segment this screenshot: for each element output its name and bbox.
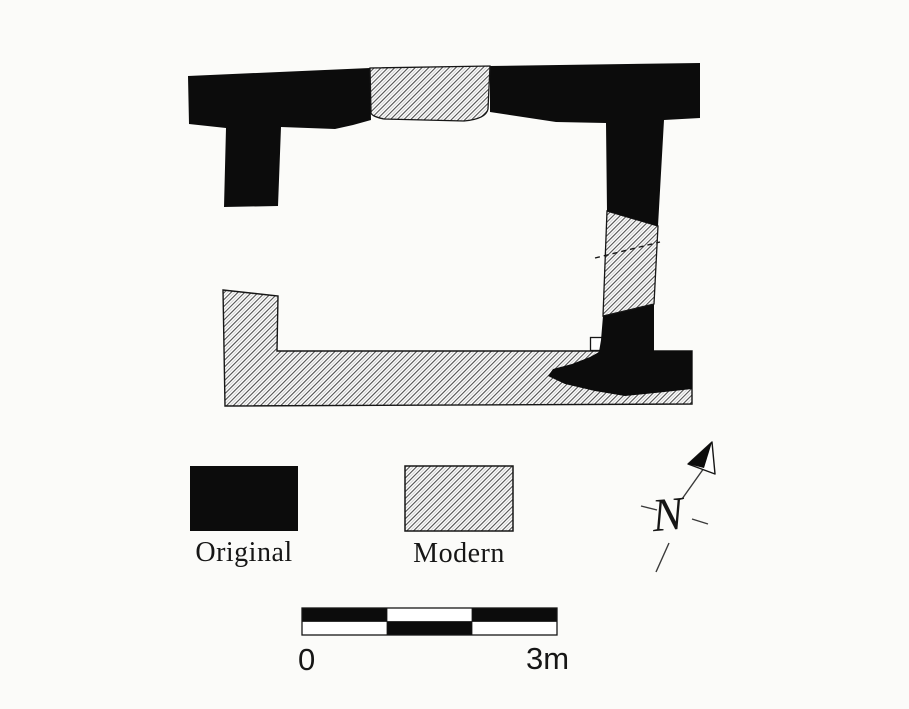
north-arrow-shaft-lower [656,543,669,572]
legend-swatch-modern [405,466,513,531]
north-arrow-dash-right [692,519,708,524]
figure-canvas: Original Modern N 0 3m [0,0,909,709]
scale-segment-bottom-2 [387,622,472,636]
scale-segment-top-1 [302,608,387,622]
legend-swatch-original [190,466,298,531]
scale-label-end: 3m [526,643,569,674]
scale-segment-bottom-3 [472,622,557,636]
legend-label-original: Original [190,539,298,567]
legend-label-modern: Modern [405,540,513,568]
scale-segment-top-2 [387,608,472,622]
north-arrow-shaft-upper [682,468,704,499]
scale-label-start: 0 [298,644,315,675]
plan-wall-top-right-original [490,63,700,226]
scale-segment-top-3 [472,608,557,622]
plan-wall-right-modern-section [603,211,658,316]
scale-bar [302,608,557,635]
scale-segment-bottom-1 [302,622,387,636]
plan-wall-top-left-original [188,68,371,207]
plan-wall-top-modern-section [370,66,490,121]
plan-wall-right-lower-original [548,304,692,396]
plan-drawing [0,0,909,709]
north-label: N [650,491,685,541]
